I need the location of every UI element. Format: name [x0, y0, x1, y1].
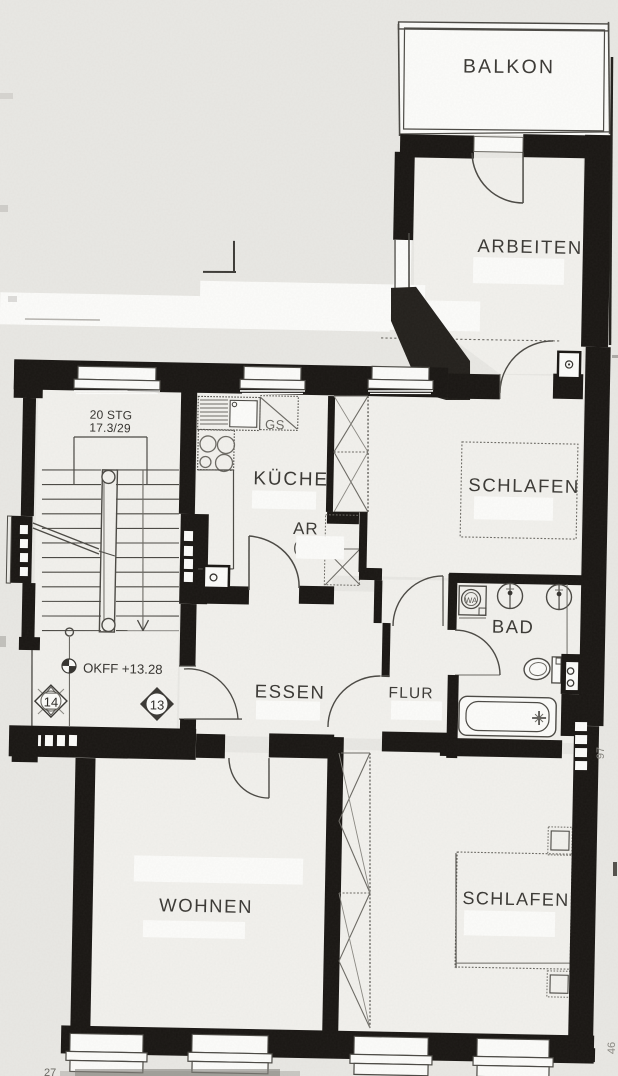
svg-text:97: 97 — [595, 747, 607, 759]
svg-text:46: 46 — [606, 1042, 618, 1054]
svg-text:27: 27 — [44, 1067, 56, 1076]
